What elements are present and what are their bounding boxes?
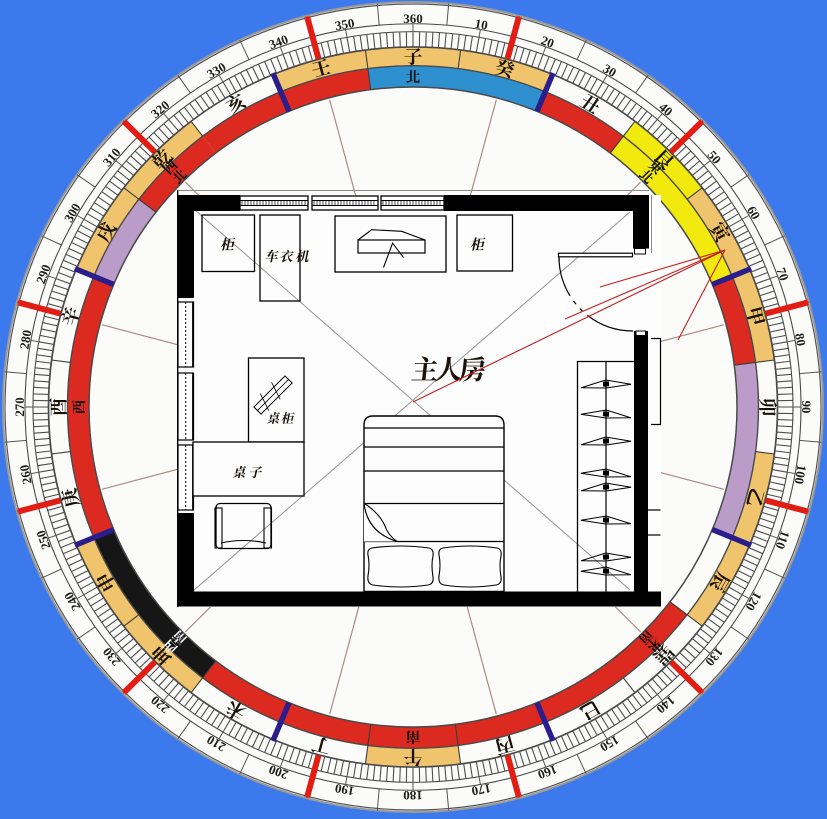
svg-text:270: 270 — [12, 397, 27, 416]
svg-text:80: 80 — [792, 332, 809, 347]
svg-text:90: 90 — [799, 401, 814, 414]
svg-text:360: 360 — [403, 11, 422, 26]
svg-text:180: 180 — [403, 788, 422, 803]
svg-text:10: 10 — [474, 16, 489, 33]
